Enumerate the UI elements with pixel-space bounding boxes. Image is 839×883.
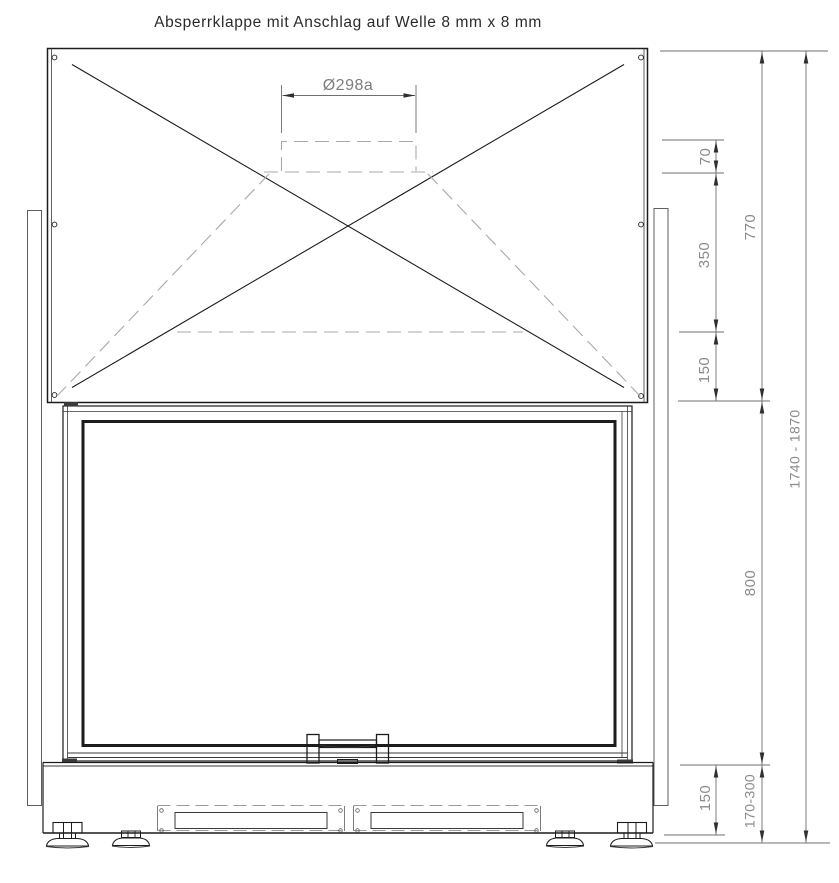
hinge-mark-top-left bbox=[64, 402, 78, 407]
wall-strip-right-outline bbox=[654, 209, 668, 806]
vent-panel-left bbox=[158, 806, 345, 833]
damper-assembly-drawing: Absperrklappe mit Anschlag auf Welle 8 m… bbox=[0, 0, 839, 883]
glass-door-frame bbox=[83, 422, 615, 746]
foot-pad bbox=[113, 838, 150, 846]
dim-upper-spacing: 350 bbox=[696, 242, 713, 269]
dimension-chain-middle: 770 800 170-300 bbox=[742, 51, 765, 843]
dim-total-height-range: 1740 - 1870 bbox=[787, 409, 803, 488]
leveling-foot-outer-left bbox=[46, 823, 89, 849]
dim-firebox-height: 800 bbox=[742, 570, 759, 597]
damper-housing-panel: Ø298a bbox=[48, 49, 648, 403]
dimension-overall: 1740 - 1870 bbox=[787, 51, 809, 843]
wall-strip-left bbox=[28, 211, 42, 806]
wall-strip-left-outline bbox=[28, 211, 42, 806]
firebox-section bbox=[62, 402, 633, 764]
vent-panel-right bbox=[354, 806, 541, 833]
dim-base-adjust-range: 170-300 bbox=[742, 774, 758, 828]
flue-hood-hidden-outline bbox=[58, 142, 641, 397]
vent-slot-left bbox=[175, 813, 327, 829]
dim-base-height: 150 bbox=[697, 785, 714, 812]
cross-bracing bbox=[72, 65, 624, 388]
wall-strip-right bbox=[654, 209, 668, 806]
leveling-foot-outer-right bbox=[610, 823, 653, 849]
drawing-title: Absperrklappe mit Anschlag auf Welle 8 m… bbox=[154, 14, 542, 31]
vent-slot-right bbox=[371, 813, 523, 829]
dimension-extension-lines bbox=[655, 51, 830, 843]
collar-diameter-label: Ø298a bbox=[323, 77, 374, 94]
base-plinth bbox=[43, 763, 653, 849]
technical-drawing-page: Absperrklappe mit Anschlag auf Welle 8 m… bbox=[0, 0, 839, 883]
dim-lower-spacing: 150 bbox=[696, 357, 713, 384]
dimension-chain-inner: 70 350 150 150 bbox=[696, 140, 718, 835]
handle-post-right bbox=[377, 735, 389, 764]
foot-pad bbox=[47, 839, 89, 847]
dim-top-section-height: 770 bbox=[742, 214, 759, 241]
door-handle bbox=[307, 735, 389, 764]
handle-post-left bbox=[307, 735, 319, 764]
foot-pad bbox=[611, 839, 653, 847]
collar-diameter-dimension: Ø298a bbox=[282, 77, 417, 133]
dim-collar-height: 70 bbox=[697, 148, 714, 166]
flue-collar-dashed bbox=[282, 142, 417, 172]
foot-pad bbox=[547, 838, 584, 846]
firebox-outline bbox=[63, 406, 632, 761]
